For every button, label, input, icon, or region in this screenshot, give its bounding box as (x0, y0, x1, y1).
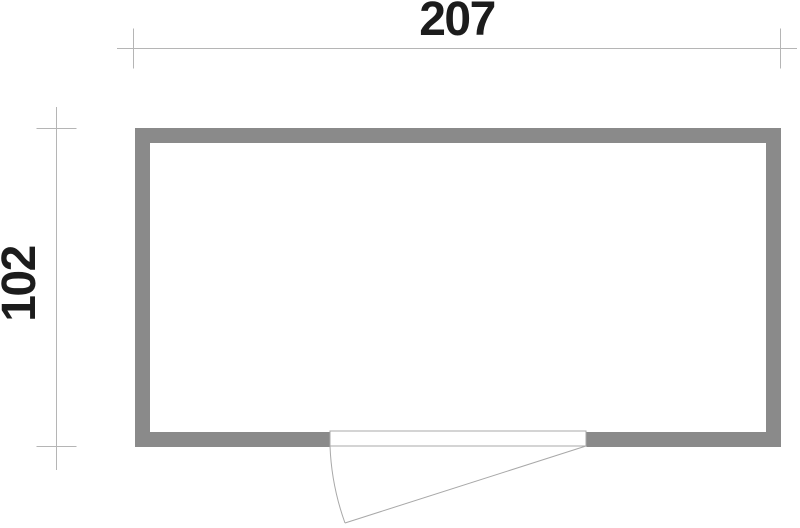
door-opening-cut (330, 431, 587, 449)
floor-plan-canvas (0, 0, 800, 528)
room-walls (135, 128, 781, 447)
height-dimension-label: 102 (0, 204, 45, 364)
width-dimension-label: 207 (133, 0, 781, 44)
floor-plan-drawing: 207 102 (0, 0, 800, 528)
door-swing-arc (330, 446, 345, 523)
door-leaf (345, 446, 586, 523)
